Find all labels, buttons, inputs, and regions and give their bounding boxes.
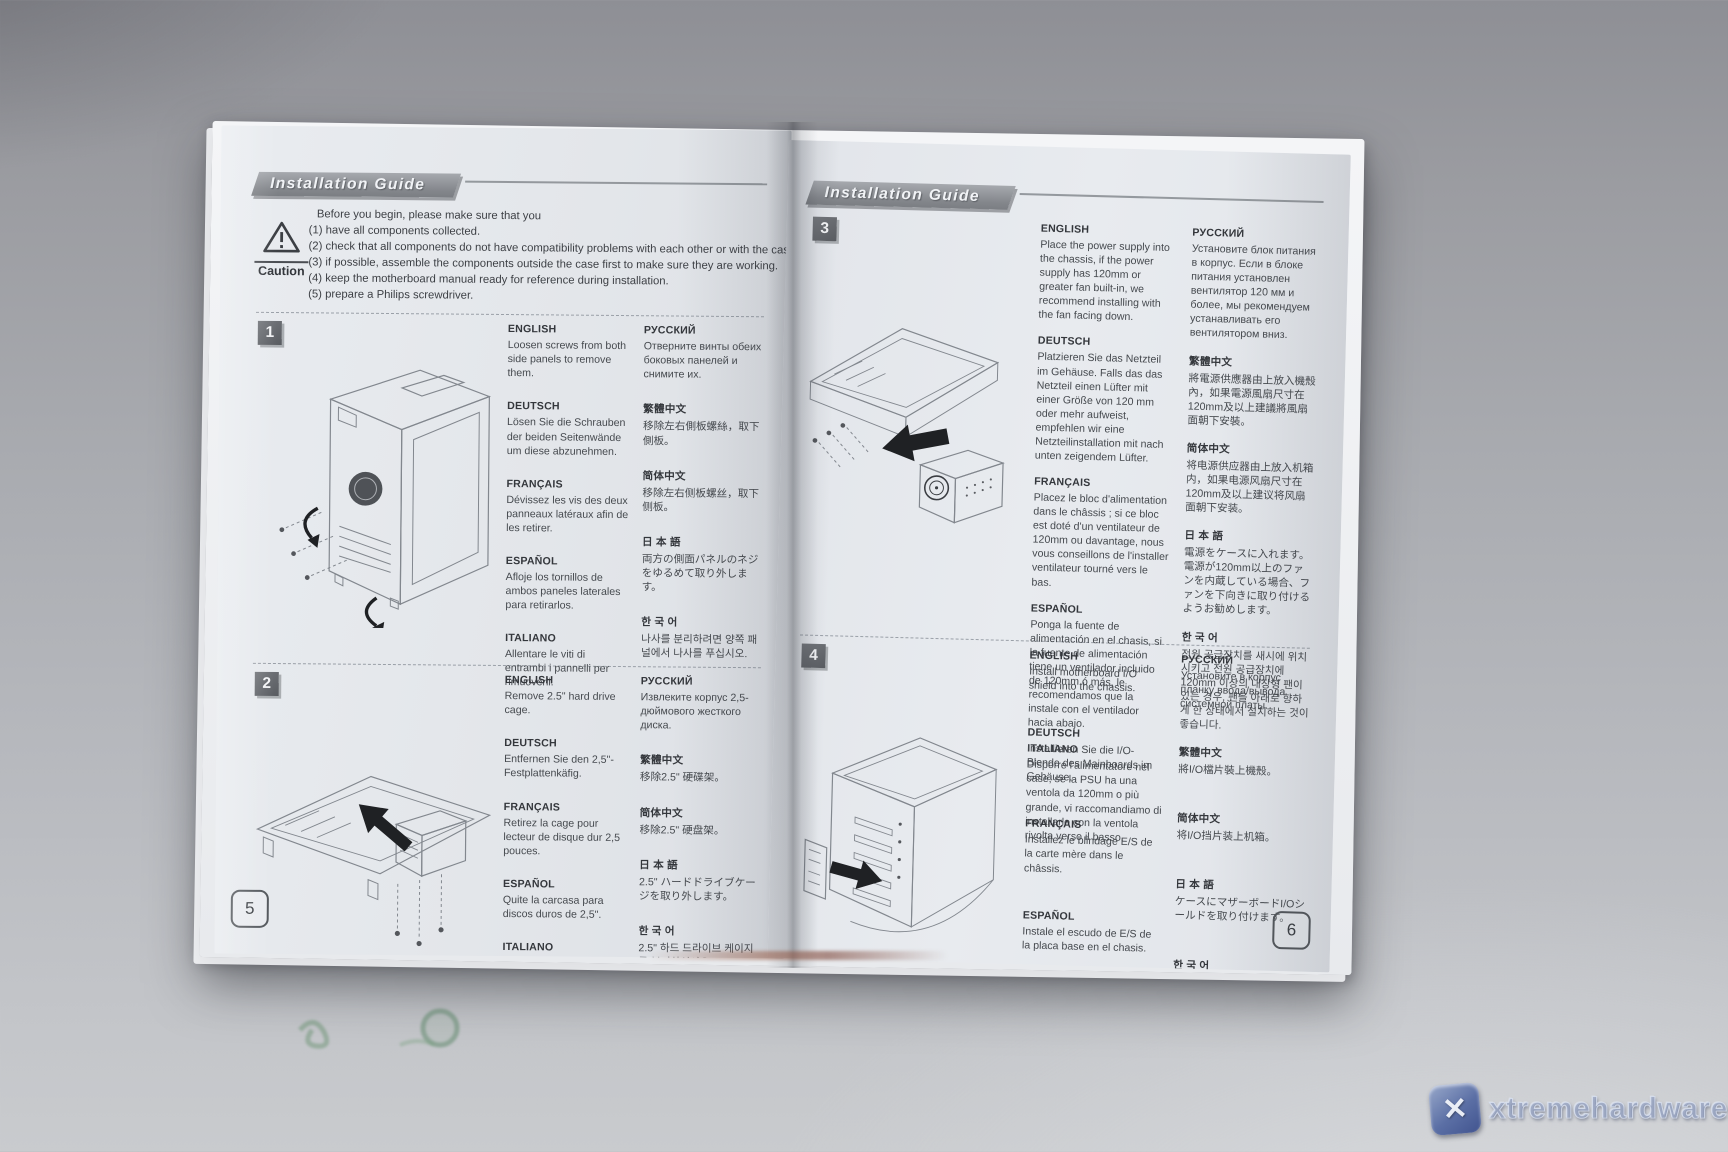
lang-label: DEUTSCH <box>504 737 626 750</box>
lang-label: ITALIANO <box>505 632 627 645</box>
right-header-row: Installation Guide <box>809 181 1323 218</box>
lang-text: Loosen screws from both side panels to r… <box>507 338 629 381</box>
lang-label: 繁體中文 <box>640 753 762 769</box>
lang-label: РУССКИЙ <box>1181 653 1312 668</box>
photo-of-installation-guide: { "watermark": { "text": "xtremehardware… <box>0 0 1728 1152</box>
lang-text: Установите в корпус планку ввода/вывода … <box>1180 668 1311 714</box>
lang-entry: 한 국 어나사를 분리하려면 양쪽 패널에서 나사를 푸십시오. <box>641 614 763 661</box>
step3-psu-diagram <box>800 295 1033 553</box>
installation-guide-banner: Installation Guide <box>255 172 457 198</box>
step-4-badge: 4 <box>801 644 826 669</box>
lang-label: DEUTSCH <box>507 400 629 413</box>
lang-label: FRANÇAIS <box>1025 818 1163 834</box>
lang-text: Entfernen Sie den 2,5"-Festplattenkäfig. <box>504 752 626 781</box>
lang-text: Quite la carcasa para discos duros de 2,… <box>503 893 625 922</box>
step2-cage-diagram <box>248 734 498 958</box>
lang-label: FRANÇAIS <box>504 801 626 814</box>
page-number: 6 <box>1272 911 1311 950</box>
lang-label: 한 국 어 <box>639 923 761 939</box>
lang-label: 简体中文 <box>1177 811 1308 829</box>
step-4-figure: 4 <box>787 643 1030 972</box>
lang-text: 將電源供應器由上放入機殼內，如果電源風扇尺寸在120mm及以上建議將風扇面朝下安… <box>1187 371 1319 431</box>
lang-text: 將I/O檔片裝上機殼。 <box>1178 763 1309 780</box>
left-page: Installation Guide Caution Before you be… <box>214 126 791 959</box>
lang-label: ESPAÑOL <box>506 555 628 568</box>
lang-text: 電源をケースに入れます。電源が120mm以上のファンを内蔵している場合、ファンを… <box>1182 546 1314 620</box>
step-2-badge: 2 <box>255 672 279 696</box>
lang-entry: 日 本 語電源をケースに入れます。電源が120mm以上のファンを内蔵している場合… <box>1182 528 1315 620</box>
lang-label: 日 本 語 <box>1184 528 1315 546</box>
lang-text: Отверните винты обеих боковых панелей и … <box>643 339 765 382</box>
lang-entry: ESPAÑOLQuite la carcasa para discos duro… <box>503 878 625 922</box>
lang-text: Установите блок питания в корпус. Если в… <box>1190 242 1323 344</box>
right-page: Installation Guide 3 <box>768 140 1351 972</box>
step-1: 1 <box>251 321 766 657</box>
step-4: 4 <box>787 643 1311 972</box>
lang-text: Dévissez les vis des deux panneaux latér… <box>506 493 628 536</box>
lang-label: РУССКИЙ <box>641 675 763 688</box>
lang-label: FRANÇAIS <box>506 478 628 491</box>
lang-label: 简体中文 <box>640 805 762 821</box>
lang-text: Извлеките корпус 2,5-дюймового жесткого … <box>640 690 762 733</box>
book-spine-edge <box>648 951 948 960</box>
lang-entry: 日 本 語2.5" ハードドライブケージを取り外します。 <box>639 857 761 904</box>
lang-entry: РУССКИЙУстановите блок питания в корпус.… <box>1190 227 1323 344</box>
lang-label: 繁體中文 <box>643 402 765 418</box>
table-green-scribbles <box>280 990 510 1060</box>
lang-entry: 繁體中文將電源供應器由上放入機殼內，如果電源風扇尺寸在120mm及以上建議將風扇… <box>1187 353 1319 431</box>
step-2: 2 <box>248 672 763 958</box>
lang-text: 移除左右侧板螺丝，取下侧板。 <box>642 486 764 515</box>
lang-text: 나사를 분리하려면 양쪽 패널에서 나사를 푸십시오. <box>641 632 763 661</box>
lang-label: 繁體中文 <box>1179 745 1310 763</box>
caution-box: Caution <box>254 206 309 303</box>
step1-case-diagram <box>251 347 501 629</box>
page-title: Installation Guide <box>255 172 457 198</box>
lang-entry: DEUTSCHPlatzieren Sie das Netzteil im Ge… <box>1035 335 1176 466</box>
step-3-column-east: РУССКИЙУстановите блок питания в корпус.… <box>1182 227 1323 638</box>
lang-label: DEUTSCH <box>1038 335 1176 351</box>
lang-label: 日 本 語 <box>639 857 761 873</box>
lang-entry: 简体中文移除左右侧板螺丝，取下侧板。 <box>642 468 764 515</box>
step-1-badge: 1 <box>258 321 282 345</box>
lang-label: DEUTSCH <box>1027 727 1165 743</box>
lang-entry: ITALIANORimuovere il supporto degli hard… <box>502 941 624 959</box>
caution-warning-icon <box>262 220 302 254</box>
lang-label: 한 국 어 <box>641 614 763 630</box>
intro-line: (5) prepare a Philips screwdriver. <box>308 286 792 306</box>
lang-entry: 繁體中文移除2.5" 硬碟架。 <box>640 753 762 786</box>
step-3: 3 <box>798 217 1323 638</box>
lang-label: 繁體中文 <box>1189 353 1320 371</box>
step-4-column-west: ENGLISHInstall motherboard I/O shield in… <box>1019 649 1167 972</box>
lang-entry: ESPAÑOLAfloje los tornillos de ambos pan… <box>505 555 627 613</box>
lang-text: Lösen Sie die Schrauben der beiden Seite… <box>507 415 629 458</box>
lang-entry: 繁體中文將I/O檔片裝上機殼。 <box>1178 745 1309 780</box>
step4-io-shield-diagram <box>790 693 1023 955</box>
lang-entry: FRANÇAISRetirez la cage pour lecteur de … <box>503 801 625 859</box>
xtremehardware-logo-icon: ✕ <box>1428 1082 1482 1136</box>
lang-entry: РУССКИЙУстановите в корпус планку ввода/… <box>1180 653 1312 714</box>
lang-text: Platzieren Sie das Netzteil im Gehäuse. … <box>1035 350 1176 466</box>
lang-label: 日 本 語 <box>642 534 764 550</box>
lang-label: 日 本 語 <box>1175 877 1306 895</box>
installation-guide-banner: Installation Guide <box>809 181 1012 210</box>
x-glyph: ✕ <box>1441 1090 1469 1127</box>
lang-label: ENGLISH <box>1029 649 1167 665</box>
lang-entry: ENGLISHLoosen screws from both side pane… <box>507 323 629 381</box>
lang-text: 将电源供应器由上放入机箱内，如果电源风扇尺寸在120mm及以上建议将风扇面朝下安… <box>1185 458 1317 518</box>
lang-label: ENGLISH <box>1041 223 1179 239</box>
step-2-column-east: РУССКИЙИзвлеките корпус 2,5-дюймового же… <box>638 675 763 958</box>
lang-text: Place the power supply into the chassis,… <box>1038 238 1178 326</box>
lang-text: Retirez la cage pour lecteur de disque d… <box>503 816 625 859</box>
lang-text: Installieren Sie die I/O-Blende des Main… <box>1026 742 1165 788</box>
lang-label: ESPAÑOL <box>1031 602 1169 618</box>
lang-entry: FRANÇAISDévissez les vis des deux pannea… <box>506 478 628 536</box>
lang-entry: 简体中文移除2.5" 硬盘架。 <box>639 805 761 838</box>
step-3-column-west: ENGLISHPlace the power supply into the c… <box>1030 223 1178 634</box>
watermark-text: xtremehardware.it <box>1489 1092 1728 1126</box>
header-rule <box>465 181 767 186</box>
lang-entry: ENGLISHInstall motherboard I/O shield in… <box>1029 649 1168 696</box>
step-1-column-east: РУССКИЙОтверните винты обеих боковых пан… <box>641 324 766 657</box>
lang-text: Install motherboard I/O shield into the … <box>1029 664 1167 696</box>
step-2-column-west: ENGLISHRemove 2.5" hard drive cage. DEUT… <box>502 674 627 958</box>
lang-label: ITALIANO <box>502 941 624 954</box>
header-rule <box>1020 193 1324 203</box>
lang-entry: 日 本 語両方の側面パネルのネジをゆるめて取り外します。 <box>642 534 765 595</box>
caution-block: Caution Before you begin, please make su… <box>254 206 767 307</box>
lang-text: 2.5" ハードドライブケージを取り外します。 <box>639 875 761 904</box>
step-2-figure: 2 <box>248 672 505 958</box>
lang-label: РУССКИЙ <box>1192 227 1323 242</box>
lang-label: РУССКИЙ <box>644 324 766 337</box>
lang-text: Remove 2.5" hard drive cage. <box>504 689 626 718</box>
lang-text: Instale el escudo de E/S de la placa bas… <box>1022 924 1160 956</box>
lang-entry: 简体中文将I/O挡片装上机箱。 <box>1176 811 1307 846</box>
lang-label: ESPAÑOL <box>1023 909 1161 925</box>
lang-text: 移除左右側板螺絲，取下側板。 <box>643 420 765 449</box>
lang-label: 한 국 어 <box>1182 629 1313 647</box>
step-1-figure: 1 <box>251 321 508 655</box>
lang-label: ENGLISH <box>508 323 630 336</box>
lang-label: FRANÇAIS <box>1034 476 1172 492</box>
lang-entry: FRANÇAISPlacez le bloc d'alimentation da… <box>1031 476 1172 593</box>
lang-label: ENGLISH <box>505 674 627 687</box>
lang-entry: 繁體中文移除左右側板螺絲，取下側板。 <box>643 402 765 449</box>
lang-label: 简体中文 <box>643 468 765 484</box>
lang-entry: РУССКИЙОтверните винты обеих боковых пан… <box>643 324 765 382</box>
section-divider <box>256 312 764 317</box>
lang-text: 移除2.5" 硬盘架。 <box>639 823 761 838</box>
lang-text: 将I/O挡片装上机箱。 <box>1176 829 1307 846</box>
page-title: Installation Guide <box>809 181 1012 210</box>
rotate-arrow-icon <box>304 508 385 629</box>
page-number: 5 <box>231 890 269 928</box>
lang-text: 移除2.5" 硬碟架。 <box>640 771 762 786</box>
lang-entry: FRANÇAISInstallez le blindage E/S de la … <box>1024 818 1163 879</box>
lang-entry: ESPAÑOLInstale el escudo de E/S de la pl… <box>1022 909 1161 956</box>
lang-entry: ENGLISHPlace the power supply into the c… <box>1038 223 1178 326</box>
lang-text: 両方の側面パネルのネジをゆるめて取り外します。 <box>642 552 764 595</box>
watermark: ✕ xtremehardware.it <box>1430 1084 1728 1134</box>
lang-label: 简体中文 <box>1187 440 1318 458</box>
lang-text: Installez le blindage E/S de la carte mè… <box>1024 833 1163 879</box>
remove-arrow-icon <box>348 792 418 859</box>
lang-entry: DEUTSCHInstallieren Sie die I/O-Blende d… <box>1026 727 1165 788</box>
left-header-row: Installation Guide <box>255 172 767 200</box>
lang-label: ESPAÑOL <box>503 878 625 891</box>
lang-entry: РУССКИЙИзвлеките корпус 2,5-дюймового же… <box>640 675 762 733</box>
lang-text: Afloje los tornillos de ambos paneles la… <box>505 570 627 613</box>
intro-list: Before you begin, please make sure that … <box>308 206 792 306</box>
caution-label: Caution <box>254 261 308 278</box>
step-3-badge: 3 <box>812 217 837 242</box>
step-1-column-west: ENGLISHLoosen screws from both side pane… <box>505 323 630 656</box>
step-3-figure: 3 <box>798 217 1041 631</box>
lang-text: Placez le bloc d'alimentation dans le ch… <box>1031 491 1171 593</box>
lang-entry: 简体中文将电源供应器由上放入机箱内，如果电源风扇尺寸在120mm及以上建议将风扇… <box>1185 440 1317 518</box>
lang-entry: DEUTSCHEntfernen Sie den 2,5"-Festplatte… <box>504 737 626 781</box>
lang-entry: ENGLISHRemove 2.5" hard drive cage. <box>504 674 626 718</box>
lang-entry: DEUTSCHLösen Sie die Schrauben der beide… <box>507 400 629 458</box>
